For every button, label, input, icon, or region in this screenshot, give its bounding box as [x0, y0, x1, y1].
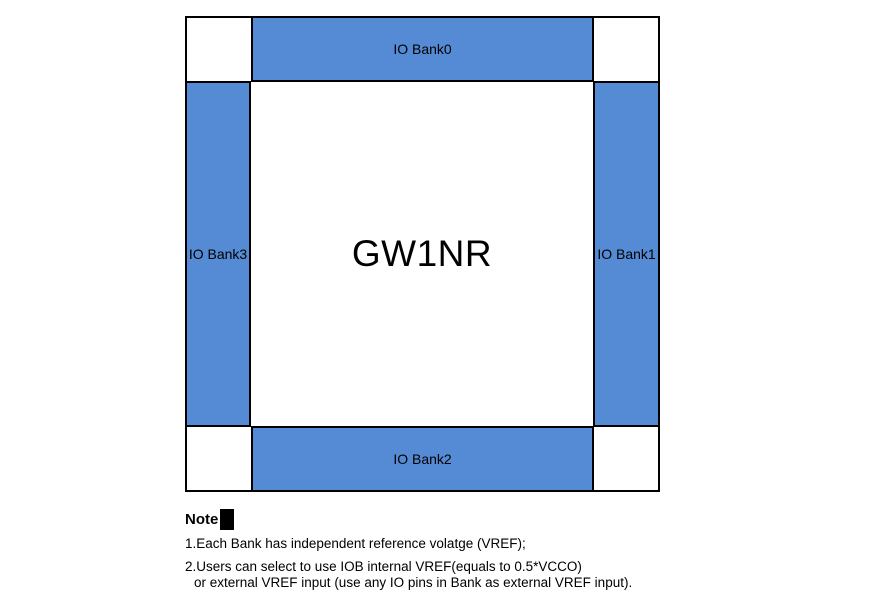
io-bank0-label: IO Bank0 [393, 41, 451, 57]
io-bank1-region: IO Bank1 [593, 81, 660, 427]
io-bank2-label: IO Bank2 [393, 451, 451, 467]
io-bank1-label: IO Bank1 [597, 246, 655, 262]
note-line-1: 1.Each Bank has independent reference vo… [185, 536, 526, 551]
note-header: Note [185, 509, 234, 530]
note-line-3: or external VREF input (use any IO pins … [194, 575, 632, 590]
io-bank3-region: IO Bank3 [185, 81, 251, 427]
note-line-2: 2.Users can select to use IOB internal V… [185, 559, 582, 574]
io-bank2-region: IO Bank2 [251, 426, 594, 492]
note-title: Note [185, 509, 218, 530]
text-cursor-block [220, 509, 234, 530]
chip-die-label: GW1NR [352, 233, 492, 275]
io-bank3-label: IO Bank3 [189, 246, 247, 262]
chip-die-area: GW1NR [253, 83, 591, 425]
io-bank0-region: IO Bank0 [251, 16, 594, 82]
page-canvas: IO Bank0 IO Bank1 IO Bank2 IO Bank3 GW1N… [0, 0, 872, 607]
